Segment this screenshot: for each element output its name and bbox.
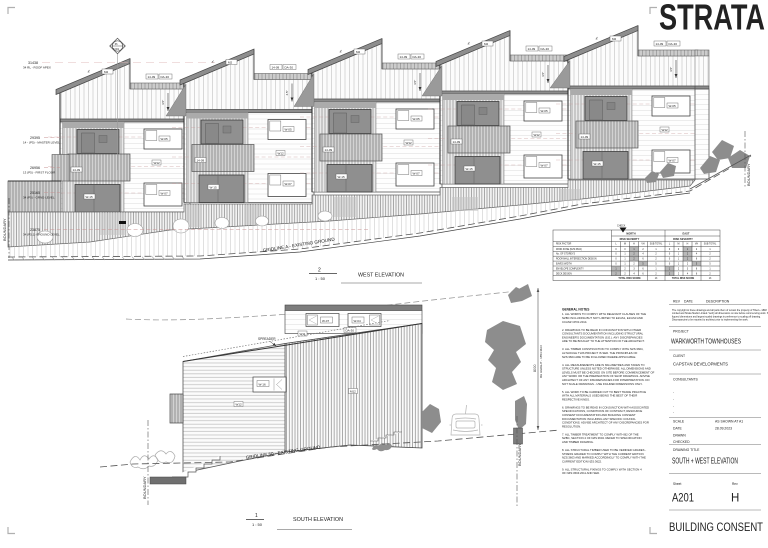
svg-text:SOUTH + WEST ELEVATION: SOUTH + WEST ELEVATION — [672, 457, 738, 466]
svg-text:SUB TOTAL: SUB TOTAL — [704, 243, 717, 246]
svg-text:-: - — [673, 404, 674, 408]
svg-text:ARE TO BE BOUGHT TO THE ATTENT: ARE TO BE BOUGHT TO THE ATTENTION OF THE… — [562, 339, 645, 343]
svg-text:34 (P5) - GRND LEVEL: 34 (P5) - GRND LEVEL — [23, 196, 55, 200]
svg-text:DRAWN: DRAWN — [673, 434, 686, 438]
svg-text:W12: W12 — [236, 403, 243, 407]
svg-text:WARKWORTH TOWNHOUSES: WARKWORTH TOWNHOUSES — [671, 339, 741, 346]
svg-text:CONSULTANTS: CONSULTANTS — [673, 378, 698, 382]
svg-text:BOUNDARY: BOUNDARY — [2, 218, 7, 241]
svg-text:W-16: W-16 — [259, 383, 266, 387]
svg-text:RH HEIGHT - 1853 MAX: RH HEIGHT - 1853 MAX — [539, 345, 543, 378]
svg-text:28.09.2023: 28.09.2023 — [715, 427, 732, 431]
svg-text:25165: 25165 — [30, 191, 40, 195]
svg-text:NZS:3604 ARE TO BE FOLLOWED WH: NZS:3604 ARE TO BE FOLLOWED WHERE APPLIC… — [562, 355, 636, 359]
svg-text:BOUNDARY: BOUNDARY — [142, 476, 147, 499]
svg-text:1 : 50: 1 : 50 — [252, 522, 263, 527]
svg-text:Sheet: Sheet — [673, 482, 681, 486]
svg-text:29395: 29395 — [30, 136, 40, 140]
svg-text:8000: 8000 — [533, 364, 537, 372]
svg-text:TOTAL RISK SCORE: TOTAL RISK SCORE — [618, 277, 641, 280]
svg-text:ROOF/WALL INTERSECTION DESIGN: ROOF/WALL INTERSECTION DESIGN — [556, 258, 597, 261]
svg-text:14 - (P5) - MASTER LEVEL: 14 - (P5) - MASTER LEVEL — [23, 141, 60, 145]
svg-text:-: - — [673, 411, 674, 415]
svg-text:SOUTH ELEVATION: SOUTH ELEVATION — [293, 517, 343, 523]
svg-text:23875: 23875 — [30, 228, 40, 232]
svg-text:BOUNDARY: BOUNDARY — [746, 163, 751, 186]
svg-text:EAVES WIDTH: EAVES WIDTH — [556, 263, 572, 266]
svg-text:GENERAL NOTES: GENERAL NOTES — [562, 308, 589, 312]
svg-text:DRAWING TITLE: DRAWING TITLE — [673, 448, 700, 452]
svg-text:-: - — [673, 397, 674, 401]
svg-text:RESOLUTION.: RESOLUTION. — [562, 424, 581, 428]
svg-text:DATE: DATE — [684, 300, 694, 304]
svg-text:31438: 31438 — [28, 61, 38, 65]
svg-text:M: M — [624, 244, 626, 246]
svg-text:SCALE: SCALE — [673, 420, 685, 424]
svg-text:ENVELOPE COMPLEXITY: ENVELOPE COMPLEXITY — [556, 268, 584, 270]
svg-text:STRATA: STRATA — [659, 0, 765, 38]
svg-text:SUB TOTAL: SUB TOTAL — [650, 243, 663, 246]
svg-text:EAST: EAST — [683, 231, 690, 235]
svg-text:WEST ELEVATION: WEST ELEVATION — [358, 273, 404, 279]
svg-text:CCANZ CP01:2014.: CCANZ CP01:2014. — [562, 320, 587, 324]
svg-text:34 RL - ROOF APEX: 34 RL - ROOF APEX — [23, 66, 51, 70]
svg-text:Rev: Rev — [732, 482, 738, 486]
svg-text:RISK SEVERITY: RISK SEVERITY — [673, 237, 693, 241]
svg-text:26956: 26956 — [30, 166, 40, 170]
svg-text:NORTH: NORTH — [626, 231, 635, 235]
svg-text:No. OF STOREYS: No. OF STOREYS — [556, 254, 575, 256]
svg-text:BOUNDARY: BOUNDARY — [517, 443, 522, 466]
svg-text:Discrepancies to be reported t: Discrepancies to be reported to architec… — [672, 319, 749, 322]
svg-text:M12: M12 — [350, 390, 356, 394]
svg-text:DATE: DATE — [673, 427, 683, 431]
svg-text:OF NZS:3604:2011 AND SED.: OF NZS:3604:2011 AND SED. — [562, 471, 600, 475]
svg-text:VH: VH — [641, 244, 645, 246]
svg-text:W-07: W-07 — [322, 319, 329, 323]
svg-text:H: H — [731, 493, 739, 505]
svg-text:1 : 50: 1 : 50 — [315, 276, 326, 281]
svg-text:CURRENT EDITION NZS:3622.: CURRENT EDITION NZS:3622. — [562, 459, 602, 463]
svg-text:-: - — [673, 390, 674, 394]
svg-text:DECK DESIGN: DECK DESIGN — [556, 273, 572, 275]
svg-text:CHECKED: CHECKED — [673, 440, 690, 444]
svg-text:34 (P5,1) GROUND LEVEL: 34 (P5,1) GROUND LEVEL — [23, 233, 60, 237]
svg-text:SPREADER: SPREADER — [258, 337, 276, 341]
svg-text:5.001: 5.001 — [113, 48, 120, 51]
svg-text:VH: VH — [695, 244, 699, 246]
svg-text:WIND ZONE (NZS:3604): WIND ZONE (NZS:3604) — [556, 249, 582, 251]
svg-text:1: 1 — [255, 513, 258, 519]
svg-text:CLIENT: CLIENT — [673, 354, 685, 358]
svg-text:AS SHOWN AT A1: AS SHOWN AT A1 — [715, 420, 743, 424]
svg-text:DESCRIPTION: DESCRIPTION — [706, 300, 730, 304]
svg-text:REV: REV — [673, 300, 681, 304]
svg-text:AND TIMBER FRAMING.: AND TIMBER FRAMING. — [562, 440, 594, 444]
svg-text:NOT SCALE DRAWINGS - USE FIGUR: NOT SCALE DRAWINGS - USE FIGURED DIMENSI… — [562, 382, 643, 386]
svg-text:M: M — [678, 244, 680, 246]
svg-text:2: 2 — [318, 268, 321, 274]
svg-text:CAPSTAN DEVELOPMENTS: CAPSTAN DEVELOPMENTS — [673, 362, 728, 367]
svg-text:A201: A201 — [672, 493, 694, 505]
svg-text:CHECK: CHECK — [617, 225, 626, 228]
svg-text:RESPECTIVE KINDS.: RESPECTIVE KINDS. — [562, 397, 590, 401]
svg-text:PROJECT: PROJECT — [673, 330, 689, 334]
svg-text:BUILDING CONSENT: BUILDING CONSENT — [669, 520, 763, 534]
svg-text:DA-30: DA-30 — [346, 329, 355, 333]
svg-text:RISK SEVERITY: RISK SEVERITY — [620, 237, 640, 241]
svg-text:TOTAL RISK SCORE: TOTAL RISK SCORE — [672, 277, 695, 280]
svg-text:13 (P5) - FIRST FLOOR: 13 (P5) - FIRST FLOOR — [23, 171, 56, 175]
svg-text:RISK FACTOR: RISK FACTOR — [556, 243, 572, 246]
svg-text:W-04: W-04 — [354, 319, 361, 323]
